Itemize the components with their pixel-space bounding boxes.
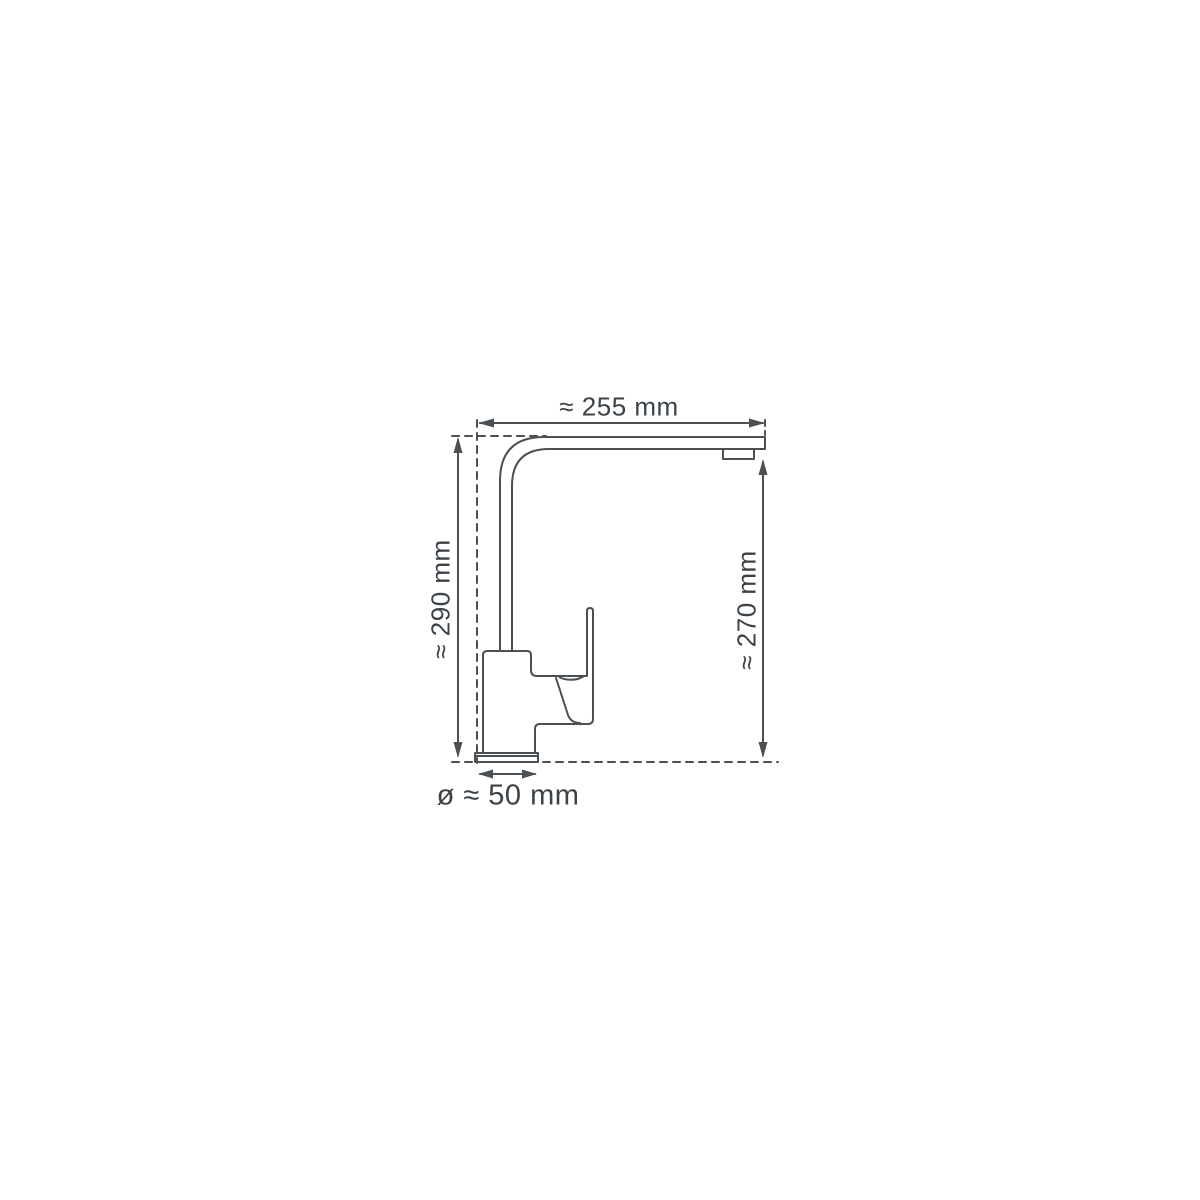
faucet-aerator: [723, 449, 754, 459]
technical-drawing-page: ≈ 255 mm ≈ 290 mm ≈ 270 mm ø ≈ 50 mm: [0, 0, 1200, 1200]
dimension-label-total-height: ≈ 290 mm: [426, 539, 457, 658]
faucet-spout-outline: [500, 437, 765, 651]
arrowhead-spout-reach-left: [478, 419, 494, 428]
dimension-label-spout-reach: ≈ 255 mm: [559, 392, 678, 423]
arrowhead-spout-height-bottom: [759, 742, 768, 758]
arrowhead-base-diameter-left: [478, 770, 493, 779]
arrowhead-total-height-top: [454, 437, 463, 453]
arrowhead-base-diameter-right: [522, 770, 537, 779]
faucet-base-plate: [475, 753, 538, 762]
arrowhead-total-height-bottom: [454, 742, 463, 758]
arrowhead-spout-reach-right: [749, 419, 765, 428]
dimension-label-base-diameter: ø ≈ 50 mm: [437, 780, 580, 813]
dimension-label-spout-height: ≈ 270 mm: [732, 550, 763, 669]
faucet-handle-edge: [556, 678, 580, 723]
faucet-dimension-drawing: [0, 0, 1200, 1200]
arrowhead-spout-height-top: [759, 459, 768, 475]
